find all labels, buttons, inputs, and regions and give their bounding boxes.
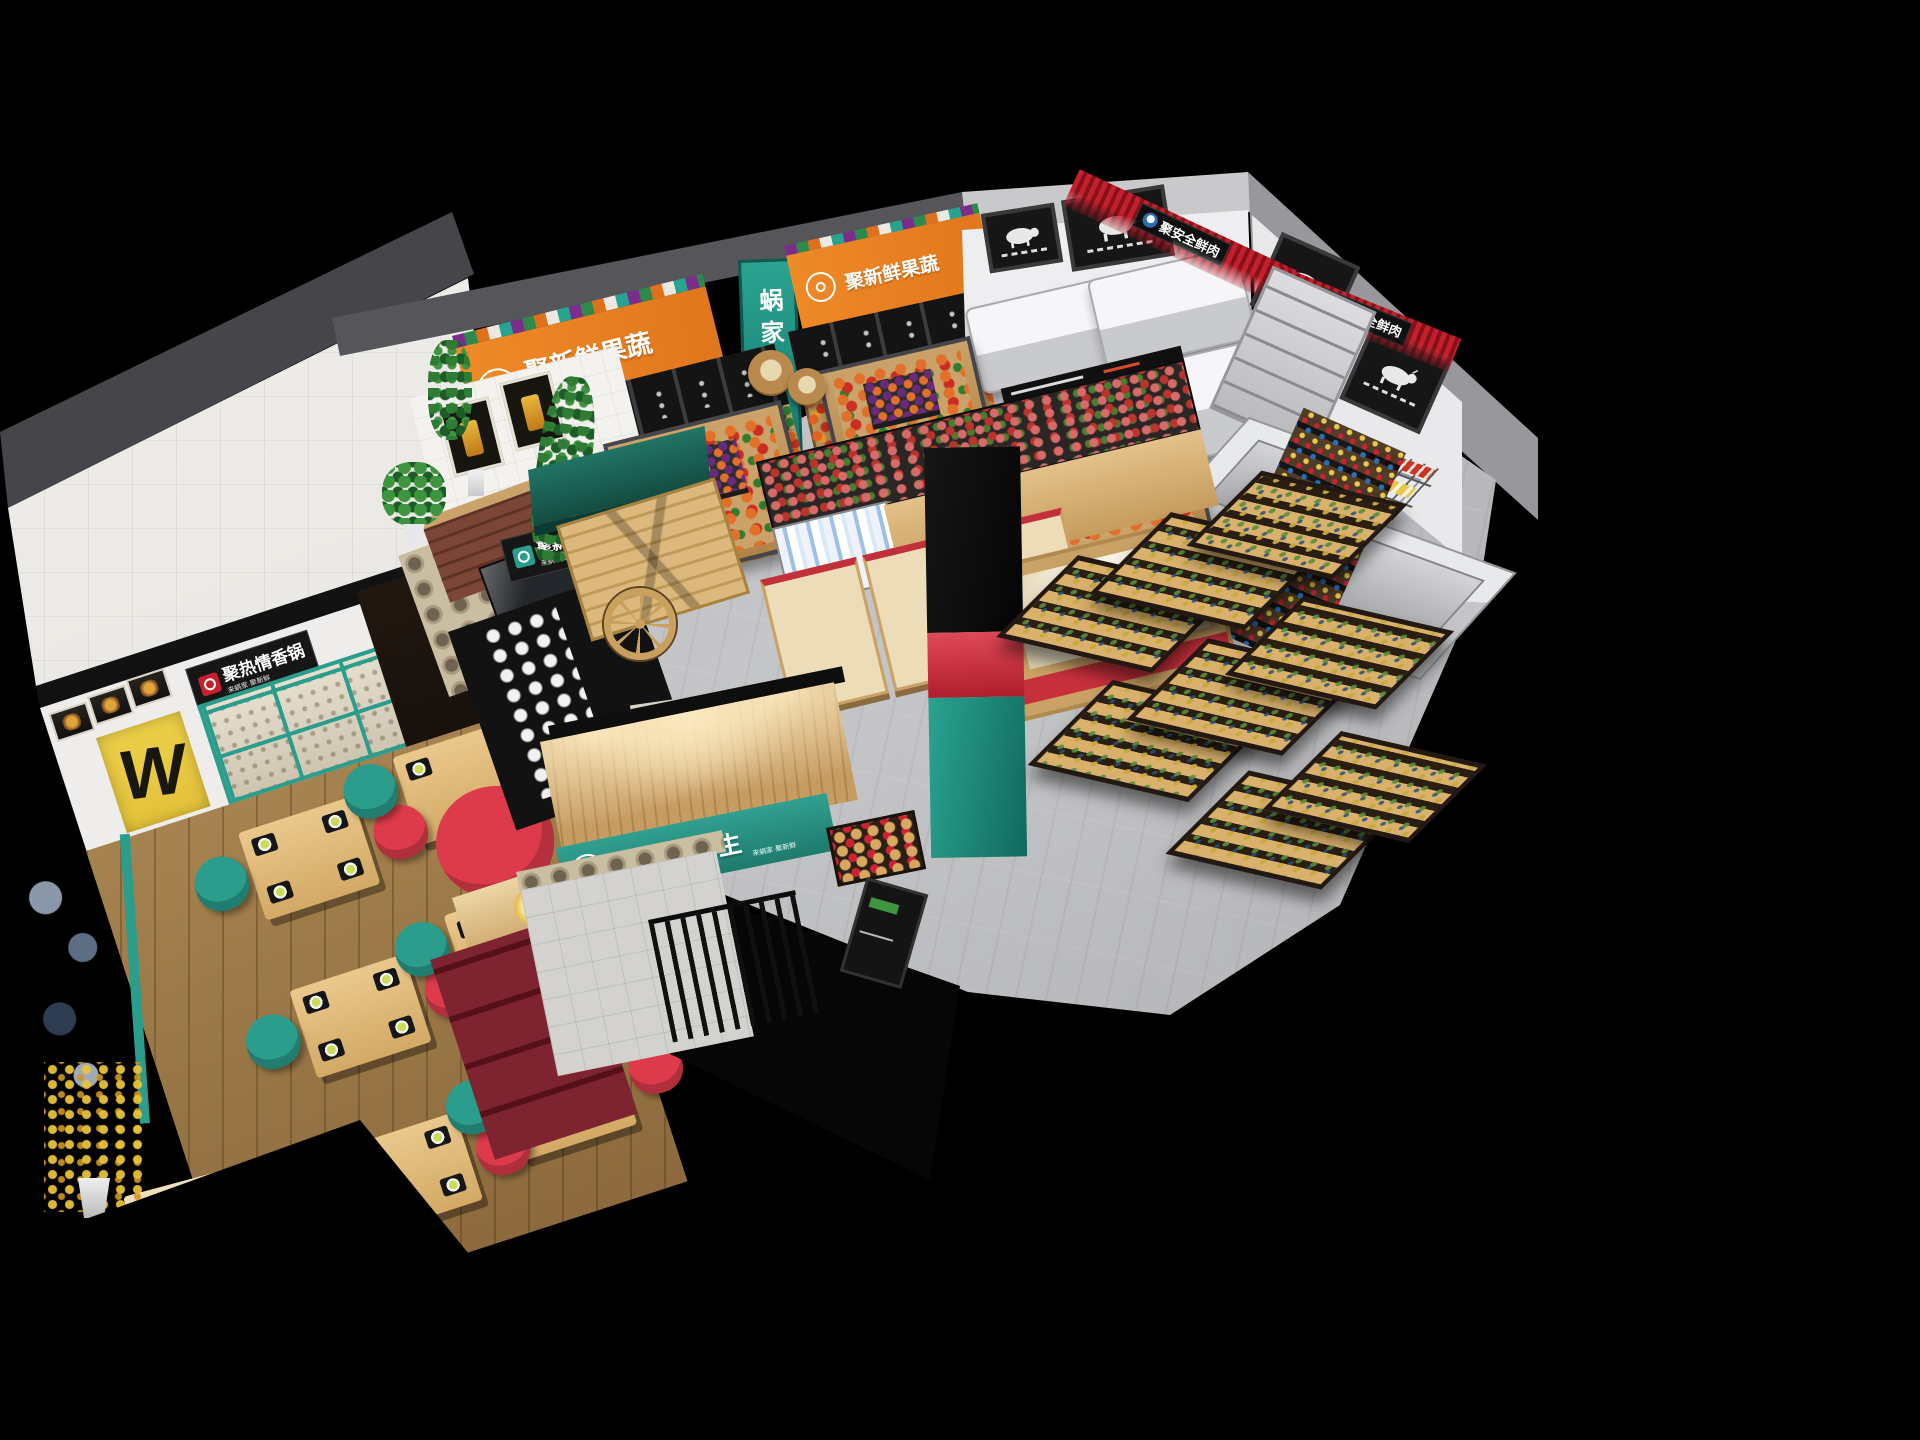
potted-plant (382, 462, 446, 526)
table-setting (405, 757, 433, 782)
column-black-block (924, 446, 1023, 632)
flower-pot (44, 1062, 144, 1212)
table-setting (251, 832, 279, 857)
table-setting (266, 880, 294, 905)
produce-banner-text: 聚新鲜果蔬 (842, 248, 941, 295)
blender (468, 470, 484, 496)
entrance-tagline: 来蜗家·聚新鲜 (752, 840, 797, 859)
menu-poster (48, 701, 95, 742)
pig-diagram-icon (997, 219, 1047, 252)
brand-vertical-text: 蜗家 (751, 287, 788, 352)
column-teal-block (928, 696, 1027, 858)
table-setting (317, 1038, 345, 1063)
dining-chair (239, 1008, 307, 1076)
cart-wheel (604, 588, 676, 660)
column-red-block (927, 631, 1024, 698)
dining-chair (188, 850, 256, 918)
table-setting (336, 857, 364, 882)
store-3d-render: 聚热情香锅 来蜗家·聚新鲜 W (0, 0, 1920, 1440)
hanging-vine (428, 340, 472, 440)
wicker-basket (748, 350, 794, 396)
hotpot-brand-icon (197, 671, 222, 696)
produce-brand-icon (803, 269, 839, 305)
meat-brand-icon (1140, 210, 1160, 230)
menu-poster (87, 685, 134, 726)
pig-diagram-board (981, 203, 1063, 274)
table-setting (439, 1173, 467, 1198)
snail-logo-icon (512, 545, 536, 569)
wall-letter: W (119, 727, 187, 817)
table-setting (372, 967, 400, 992)
table-setting (388, 1015, 416, 1040)
table-setting (321, 809, 349, 834)
wicker-basket (788, 368, 826, 406)
table-setting (424, 1125, 452, 1150)
table-setting (302, 990, 330, 1015)
store-column (924, 446, 1027, 858)
